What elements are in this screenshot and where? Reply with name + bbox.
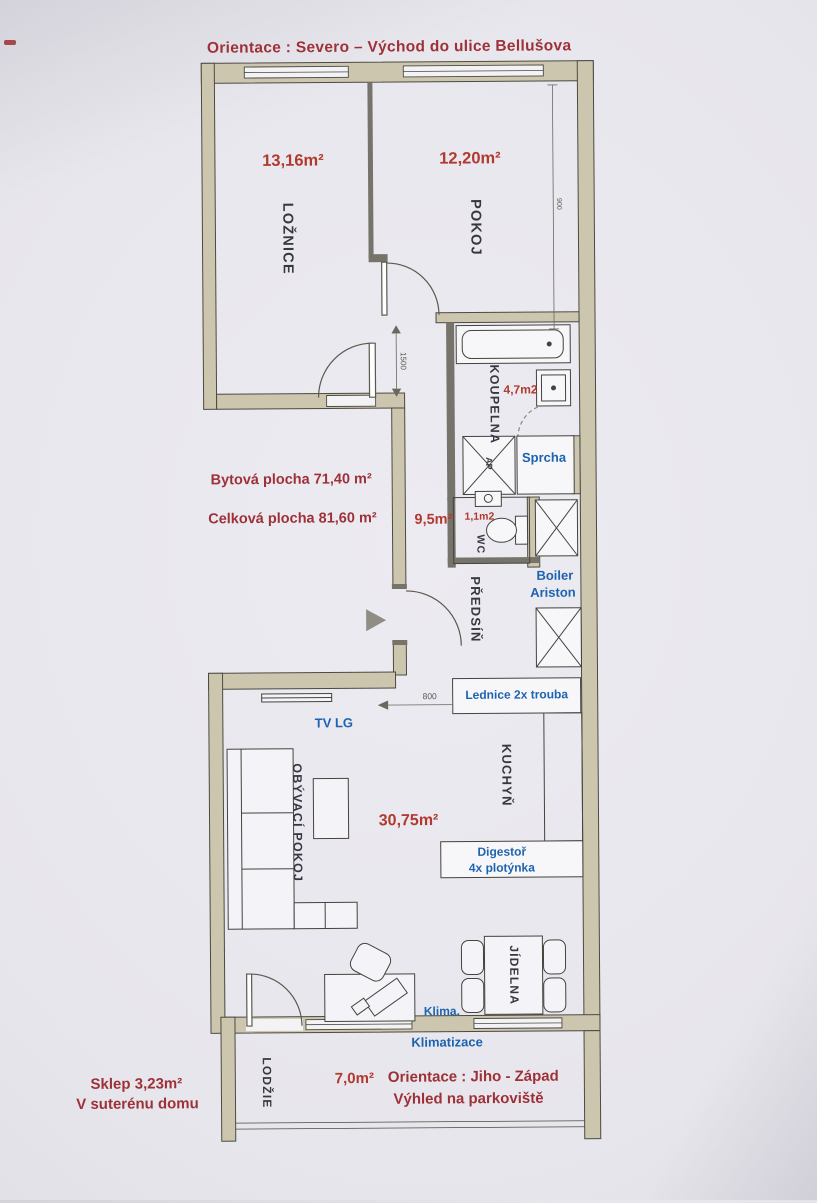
area-label-predsin: 9,5m²: [414, 513, 452, 529]
dimension-label-900: 900: [554, 198, 562, 210]
room-label-koupelna: KOUPELNA: [486, 364, 500, 444]
coffee-table-icon: [313, 778, 348, 838]
area-label-lodzie: 7,0m²: [335, 1071, 374, 1088]
area-label-loznice: 13,16m²: [262, 151, 324, 170]
living-area-total: Bytová plocha 71,40 m²: [211, 472, 372, 489]
dining-chair-icon: [543, 940, 565, 974]
washer-label: AP: [483, 457, 493, 470]
scan-artifact: [4, 40, 16, 45]
area-label-pokoj: 12,20m²: [439, 149, 501, 168]
dining-chair-icon: [544, 978, 566, 1012]
boiler-label-line2: Ariston: [530, 586, 576, 601]
room-label-loznice: LOŽNICE: [278, 203, 294, 275]
ac-label-short: Klima.: [424, 1005, 460, 1018]
floorplan-drawing: [0, 0, 817, 1203]
dimension-label-1500: 1500: [398, 352, 407, 370]
area-label-koupelna: 4,7m2: [503, 383, 537, 396]
closet-icon: [535, 500, 577, 556]
shower-label: Sprcha: [522, 451, 566, 466]
room-label-lodzie: LODŽIE: [260, 1057, 274, 1108]
floorplan-sheet: Orientace : Severo – Východ do ulice Bel…: [0, 0, 817, 1203]
room-label-wc: WC: [474, 534, 486, 554]
entrance-arrow-icon: [366, 609, 386, 631]
page-title: Orientace : Severo – Východ do ulice Bel…: [207, 37, 572, 57]
hood-label-line1: Digestoř: [477, 846, 526, 860]
dining-chair-icon: [461, 940, 483, 974]
dining-chair-icon: [462, 978, 484, 1012]
boiler-label-line1: Boiler: [536, 569, 573, 584]
area-label-wc: 1,1m2: [464, 512, 494, 524]
room-label-obyvaci-pokoj: OBÝVACÍ POKOJ: [289, 763, 304, 882]
tv-icon: [262, 693, 332, 701]
cellar-note-line1: Sklep 3,23m²: [90, 1076, 182, 1093]
bathtub-icon: [456, 325, 570, 364]
tv-label: TV LG: [315, 716, 353, 731]
washbasin-icon: [536, 370, 570, 406]
loggia-view-note: Výhled na parkoviště: [393, 1091, 543, 1109]
cellar-note-line2: V suterénu domu: [76, 1096, 199, 1113]
room-label-predsin: PŘEDSÍŇ: [468, 576, 483, 642]
room-label-kuchyn: KUCHYŇ: [499, 744, 514, 807]
room-label-pokoj: POKOJ: [466, 199, 482, 256]
dimension-label-800: 800: [423, 692, 437, 701]
scanned-floorplan-page: { "title": "Orientace : Severo – Východ …: [0, 0, 817, 1200]
wc-sink-icon: [475, 491, 501, 506]
loggia-orientation-note: Orientace : Jiho - Západ: [388, 1069, 559, 1087]
fridge-oven-label: Lednice 2x trouba: [465, 688, 568, 702]
ac-label-long: Klimatizace: [411, 1035, 483, 1050]
total-area: Celková plocha 81,60 m²: [208, 511, 377, 528]
area-label-obyvaci-pokoj: 30,75m²: [379, 812, 439, 830]
room-label-jidelna: JÍDELNA: [507, 945, 521, 1005]
hood-label-line2: 4x plotýnka: [469, 861, 535, 875]
kitchen-counter: [544, 713, 583, 841]
closet-icon: [536, 608, 581, 667]
